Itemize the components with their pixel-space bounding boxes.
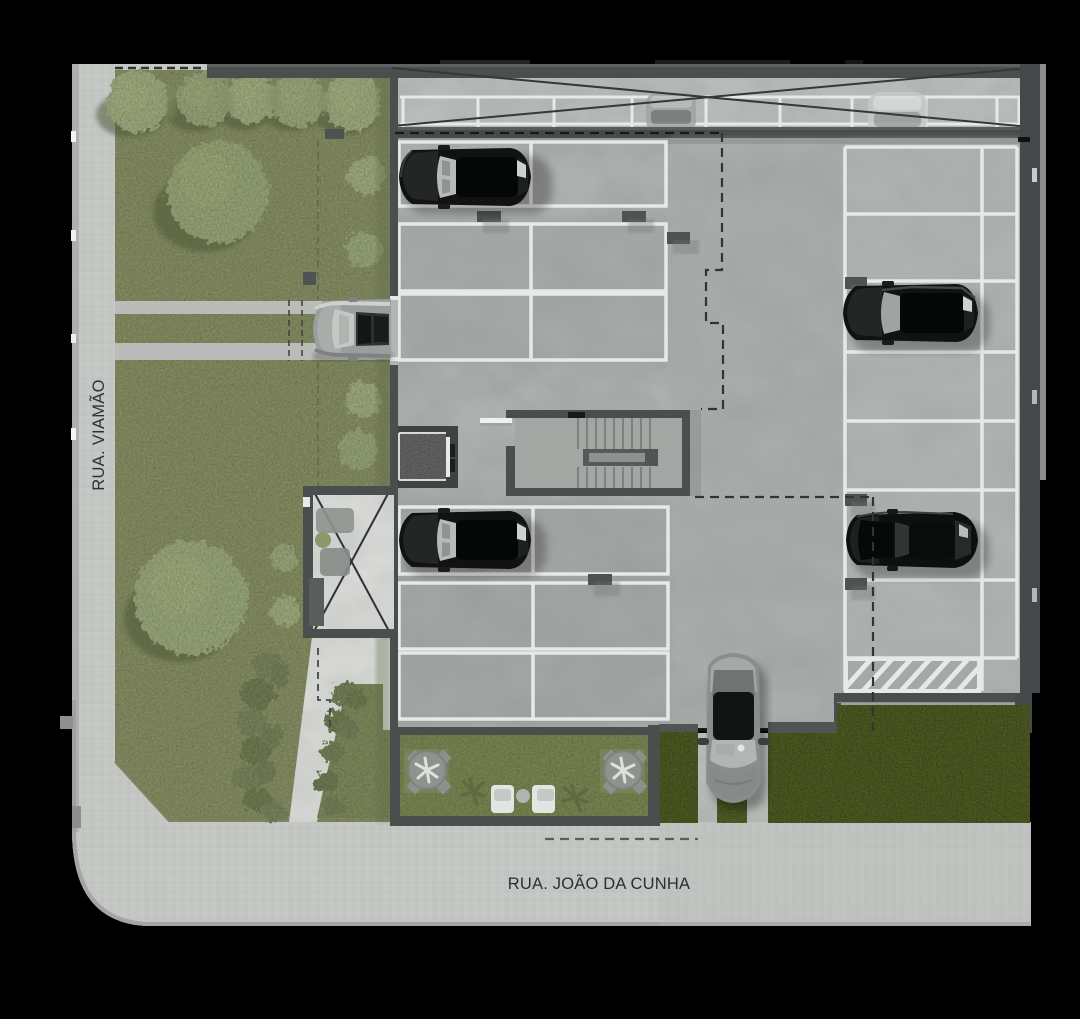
svg-text:RUA. VIAMÃO: RUA. VIAMÃO xyxy=(88,379,108,491)
svg-text:RUA. JOÃO DA CUNHA: RUA. JOÃO DA CUNHA xyxy=(508,873,690,893)
